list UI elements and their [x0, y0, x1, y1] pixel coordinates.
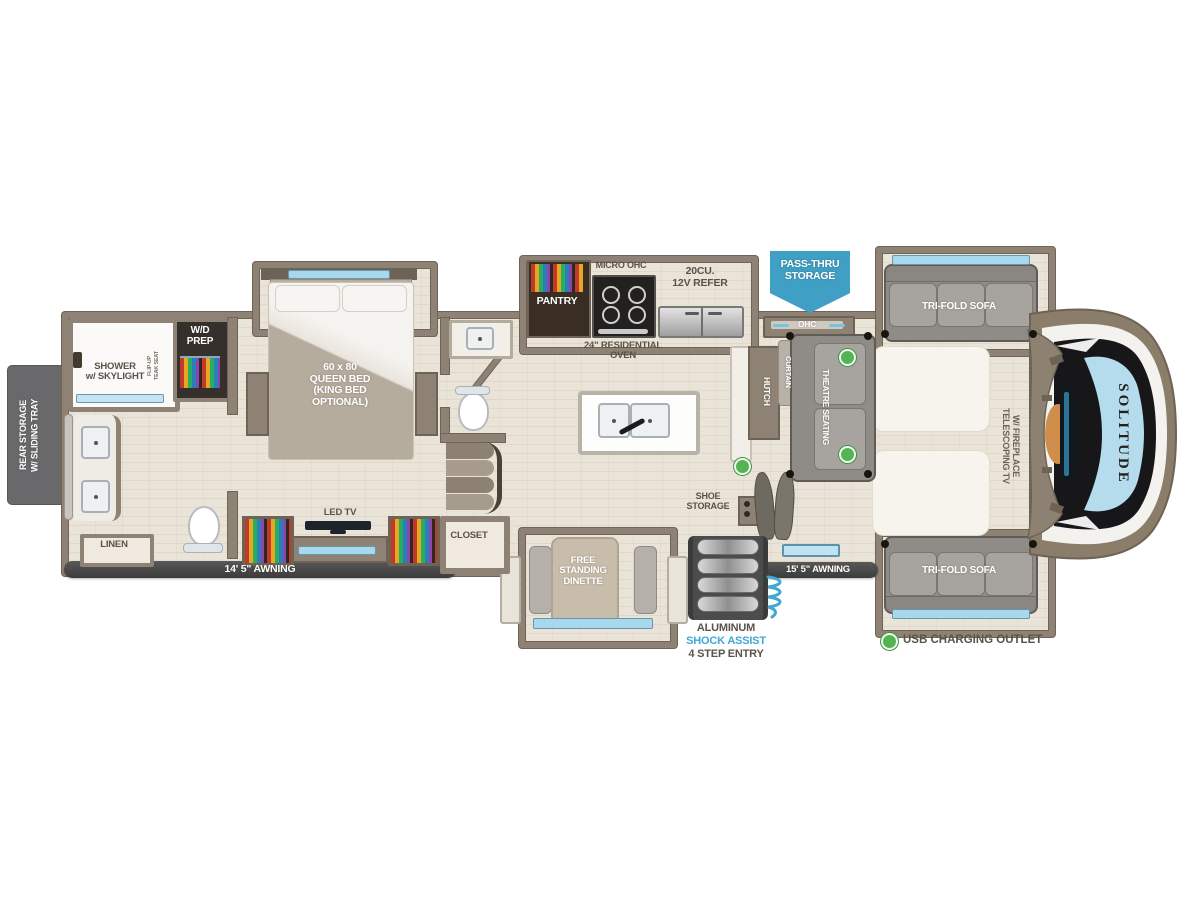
- refer-label: 20CU. 12V REFER: [658, 266, 742, 289]
- pass-thru-banner: PASS-THRU STORAGE: [770, 251, 850, 313]
- vanity-sink-1: [81, 426, 110, 459]
- range: [592, 275, 656, 338]
- sofa-bottom-window: [892, 609, 1030, 619]
- nightstand-right: [415, 372, 438, 436]
- ohc-label: OHC: [763, 320, 851, 329]
- rear-storage-box: REAR STORAGE W/ SLIDING TRAY: [8, 366, 66, 504]
- cap-notch-2: [1042, 395, 1052, 401]
- wd-prep-label: W/D PREP: [177, 325, 223, 347]
- bath-bedroom-wall-lower: [228, 492, 237, 558]
- led-tv-stand: [330, 530, 346, 534]
- vanity-sink-2: [81, 480, 110, 513]
- bedroom-window: [288, 270, 390, 279]
- wd-shelves: [180, 356, 220, 388]
- bath-bedroom-wall-upper: [228, 318, 237, 414]
- rear-window-trim: [64, 414, 73, 520]
- telescoping-tv-label: TELESCOPING TV W/ FIREPLACE: [1000, 388, 1032, 504]
- rear-storage-label: REAR STORAGE W/ SLIDING TRAY: [18, 370, 58, 500]
- shoe-storage-label: SHOE STORAGE: [680, 492, 736, 512]
- theatre-foot-1: [786, 332, 794, 340]
- wd-prep-cabinet: W/D PREP: [173, 318, 235, 402]
- midbath-sink: [466, 327, 494, 350]
- sofa-bottom-foot-2: [1029, 540, 1037, 548]
- bedroom-steps: [443, 442, 502, 514]
- closet-box: [440, 516, 510, 574]
- entry-steps: [688, 536, 768, 620]
- sofa-top-window: [892, 255, 1030, 265]
- usb-outlet-dot: [839, 446, 856, 463]
- brand-label: SOLITUDE: [1115, 383, 1131, 485]
- linen-label: LINEN: [84, 540, 144, 550]
- bookshelf-right: [388, 516, 440, 566]
- theatre-foot-4: [864, 470, 872, 478]
- front-awning-label: 15' 5" AWNING: [762, 565, 874, 575]
- toilet-rear: [188, 506, 220, 546]
- usb-outlet-dot: [734, 458, 751, 475]
- sofa-bottom-foot-1: [881, 540, 889, 548]
- sofa-top-foot-2: [1029, 330, 1037, 338]
- living-rug-bottom: [872, 450, 990, 536]
- entry-label-4-step: 4 STEP ENTRY: [676, 648, 776, 660]
- tv-screen: [1064, 392, 1069, 476]
- dinette-label: FREE STANDING DINETTE: [546, 556, 620, 587]
- dinette-window: [533, 618, 653, 629]
- entry-label-aluminum: ALUMINUM: [676, 622, 776, 634]
- queen-bed-label: 60 x 80 QUEEN BED (KING BED OPTIONAL): [278, 362, 402, 408]
- usb-legend-dot: [881, 633, 898, 650]
- shower-glass: [76, 394, 164, 403]
- closet-label: CLOSET: [443, 531, 495, 541]
- toilet-mid-base: [455, 386, 490, 395]
- theatre-seating: [790, 334, 876, 482]
- dinette-chair-right: [634, 546, 657, 614]
- led-tv: [305, 521, 371, 530]
- shower-label: SHOWER w/ SKYLIGHT: [76, 362, 154, 383]
- usb-legend-label: USB CHARGING OUTLET: [903, 634, 1063, 647]
- midbath-wall-bottom: [441, 434, 505, 442]
- trifold-sofa-top-label: TRI-FOLD SOFA: [894, 301, 1024, 312]
- pass-thru-label: PASS-THRU STORAGE: [770, 259, 850, 282]
- micro-ohc-label: MICRO OHC: [583, 261, 659, 271]
- shock-assist-spring-icon: [762, 575, 786, 619]
- flip-seat-label: FLIP-UP TEAK SEAT: [147, 338, 161, 394]
- entry-door-sill: [782, 544, 840, 557]
- floorplan-canvas: REAR STORAGE W/ SLIDING TRAY SHOWER w/ S…: [0, 0, 1200, 900]
- led-tv-label: LED TV: [307, 508, 373, 518]
- bed-pillow-left: [275, 285, 340, 312]
- pantry-label: PANTRY: [527, 296, 587, 308]
- usb-outlet-dot: [839, 349, 856, 366]
- trifold-sofa-bottom-label: TRI-FOLD SOFA: [894, 565, 1024, 576]
- cap-notch-3: [1042, 467, 1052, 473]
- bookshelf-left: [242, 516, 294, 566]
- curtain-label: CURTAIN: [778, 342, 792, 402]
- bed-pillow-right: [342, 285, 407, 312]
- entry-label-shock-assist: SHOCK ASSIST: [676, 635, 776, 647]
- oven-label: 24" RESIDENTIAL OVEN: [572, 341, 674, 362]
- sofa-top-foot-1: [881, 330, 889, 338]
- theatre-label: THEATRE SEATING: [814, 340, 830, 474]
- front-cap: SOLITUDE: [1020, 300, 1180, 568]
- pantry-shelves: [531, 264, 583, 292]
- theatre-foot-3: [864, 332, 872, 340]
- theatre-foot-2: [786, 470, 794, 478]
- bedroom-dresser: [288, 536, 388, 563]
- rear-awning-label: 14' 5" AWNING: [170, 564, 350, 576]
- living-rug-top: [872, 346, 990, 432]
- midbath-wall-left: [441, 318, 449, 374]
- dresser-glass: [298, 546, 376, 555]
- dinette-jamb-right: [667, 556, 688, 624]
- nightstand-left: [246, 372, 269, 436]
- toilet-mid: [458, 392, 489, 431]
- hutch-label: HUTCH: [753, 352, 771, 430]
- toilet-rear-base: [183, 543, 223, 553]
- refrigerator: [658, 306, 744, 338]
